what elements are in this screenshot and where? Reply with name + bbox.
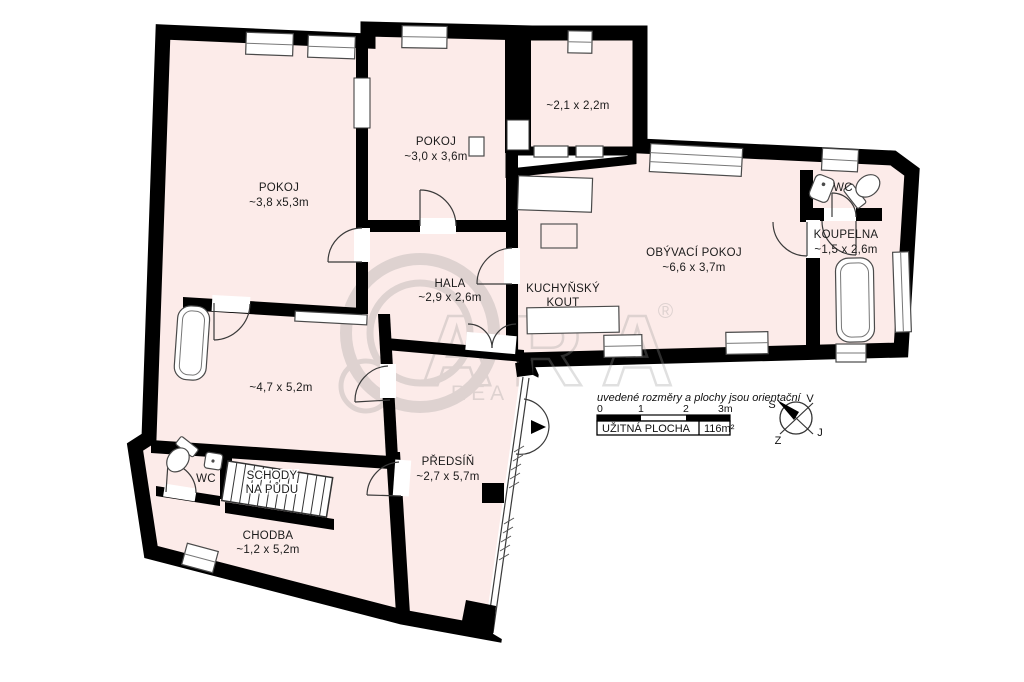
compass-label-s: S: [768, 399, 775, 411]
room-dims: ~2,1 x 2,2m: [546, 100, 609, 112]
door-gap: [380, 364, 396, 398]
compass-label-j: J: [817, 427, 823, 439]
door-gap: [354, 228, 370, 262]
window: [308, 35, 356, 59]
window: [649, 144, 742, 177]
window: [402, 26, 447, 49]
scale-tick-1: 1: [638, 403, 644, 415]
room-dims: ~3,8 x5,3m: [249, 197, 309, 209]
window: [726, 332, 768, 355]
area-value: 116m²: [704, 423, 735, 435]
window: [821, 148, 858, 172]
room-label-room-47: ~4,7 x 5,2m: [249, 382, 312, 394]
room-name: NA PŮDU: [246, 483, 299, 496]
room-dims: ~2,7 x 5,7m: [416, 471, 479, 483]
window: [534, 146, 568, 157]
bathtub-icon: [173, 305, 210, 381]
scale-tick-3: 3m: [718, 403, 733, 415]
door-gap: [824, 208, 856, 221]
room-name: OBÝVACÍ POKOJ: [646, 246, 742, 259]
room-name: KUCHYŇSKÝ: [526, 282, 600, 295]
wall-opening: [507, 120, 529, 150]
room-name: KOUPELNA: [814, 229, 879, 241]
window: [576, 146, 603, 157]
window: [836, 344, 866, 362]
area-table: UŽITNÁ PLOCHA 116m²: [597, 421, 735, 435]
kitchen-counter: [517, 176, 592, 213]
door-gap: [420, 218, 456, 234]
svg-text:REA: REA: [451, 382, 509, 405]
shaft: [469, 137, 484, 156]
scale-tick-0: 0: [597, 403, 603, 415]
room-label-wc-top: WC: [833, 182, 853, 194]
entrance-arrow-icon: [531, 420, 546, 434]
wall-opening: [354, 78, 370, 128]
door-gap: [504, 248, 520, 284]
kitchen-counter: [527, 306, 619, 334]
door-gap: [393, 459, 411, 496]
wall: [356, 38, 368, 228]
scale-tick-2: 2: [683, 403, 689, 415]
room-name: CHODBA: [243, 530, 294, 542]
wall: [356, 262, 368, 314]
window: [604, 335, 642, 358]
window: [893, 252, 912, 333]
wall: [515, 361, 533, 377]
svg-text:®: ®: [658, 300, 678, 323]
room-label-small-room: ~2,1 x 2,2m: [546, 100, 609, 112]
window: [246, 32, 294, 56]
area-label: UŽITNÁ PLOCHA: [602, 422, 691, 435]
room-dims: ~6,6 x 3,7m: [662, 262, 725, 274]
wall: [482, 483, 504, 503]
window: [568, 31, 592, 53]
room-name: SCHODY: [247, 470, 298, 482]
room-label-wc-bottom: WC: [196, 473, 216, 485]
floor-plan-drawing: ARA REA ®: [0, 0, 1024, 682]
compass-label-v: V: [806, 393, 814, 405]
room-dims: ~3,0 x 3,6m: [404, 151, 467, 163]
room-dims: ~2,9 x 2,6m: [418, 292, 481, 304]
room-dims: ~1,2 x 5,2m: [236, 544, 299, 556]
room-name: WC: [833, 182, 853, 194]
room-dims: ~4,7 x 5,2m: [249, 382, 312, 394]
room-name: POKOJ: [259, 182, 299, 194]
room-name: HALA: [434, 278, 465, 290]
room-name: WC: [196, 473, 216, 485]
compass-label-z: Z: [775, 435, 782, 447]
door-gap: [212, 295, 251, 313]
scale-bar: [597, 415, 730, 421]
room-name: POKOJ: [416, 136, 456, 148]
room-dims: ~1,5 x 2,6m: [814, 244, 877, 256]
wall: [806, 256, 820, 348]
floor-plan-canvas: ARA REA ®: [0, 0, 1024, 682]
sink-icon: [204, 452, 223, 470]
room-name: KOUT: [547, 297, 580, 309]
room-name: PŘEDSÍŇ: [422, 455, 475, 468]
bathtub-icon: [835, 258, 874, 343]
